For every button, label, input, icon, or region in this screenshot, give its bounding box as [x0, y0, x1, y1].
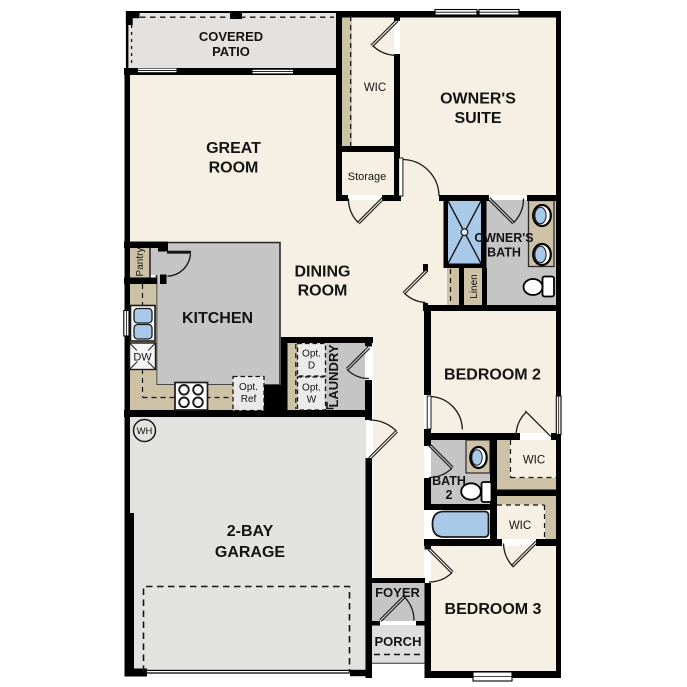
svg-text:ROOM: ROOM: [298, 283, 348, 300]
svg-text:LAUNDRY: LAUNDRY: [326, 344, 341, 407]
svg-text:2: 2: [446, 488, 453, 502]
svg-text:DW: DW: [133, 352, 152, 364]
svg-text:Opt.: Opt.: [302, 383, 321, 394]
svg-text:Ref: Ref: [241, 394, 257, 405]
svg-text:BEDROOM 3: BEDROOM 3: [445, 601, 542, 618]
svg-text:GREAT: GREAT: [206, 140, 261, 157]
svg-text:SUITE: SUITE: [454, 110, 501, 127]
svg-text:Opt.: Opt.: [302, 349, 321, 360]
svg-text:WIC: WIC: [364, 82, 386, 94]
svg-text:WIC: WIC: [523, 455, 545, 467]
svg-text:Linen: Linen: [469, 274, 480, 298]
svg-text:BATH: BATH: [487, 246, 521, 260]
svg-text:KITCHEN: KITCHEN: [182, 310, 253, 327]
svg-text:OWNER'S: OWNER'S: [474, 231, 533, 245]
svg-text:FOYER: FOYER: [375, 585, 420, 600]
svg-text:PORCH: PORCH: [375, 634, 422, 649]
svg-text:COVERED: COVERED: [199, 29, 263, 44]
svg-text:DINING: DINING: [295, 264, 351, 281]
svg-text:2-BAY: 2-BAY: [227, 523, 274, 540]
svg-text:GARAGE: GARAGE: [215, 544, 286, 561]
svg-text:Pantry: Pantry: [135, 248, 146, 277]
svg-text:WH: WH: [137, 426, 153, 437]
svg-text:BATH: BATH: [432, 474, 466, 488]
svg-text:D: D: [308, 361, 315, 372]
svg-text:Storage: Storage: [348, 171, 387, 183]
svg-text:PATIO: PATIO: [212, 44, 250, 59]
svg-text:OWNER'S: OWNER'S: [440, 91, 516, 108]
svg-text:WIC: WIC: [509, 520, 531, 532]
svg-text:W: W: [307, 395, 317, 406]
svg-text:BEDROOM 2: BEDROOM 2: [444, 367, 541, 384]
svg-text:Opt.: Opt.: [239, 382, 258, 393]
svg-text:ROOM: ROOM: [209, 160, 259, 177]
